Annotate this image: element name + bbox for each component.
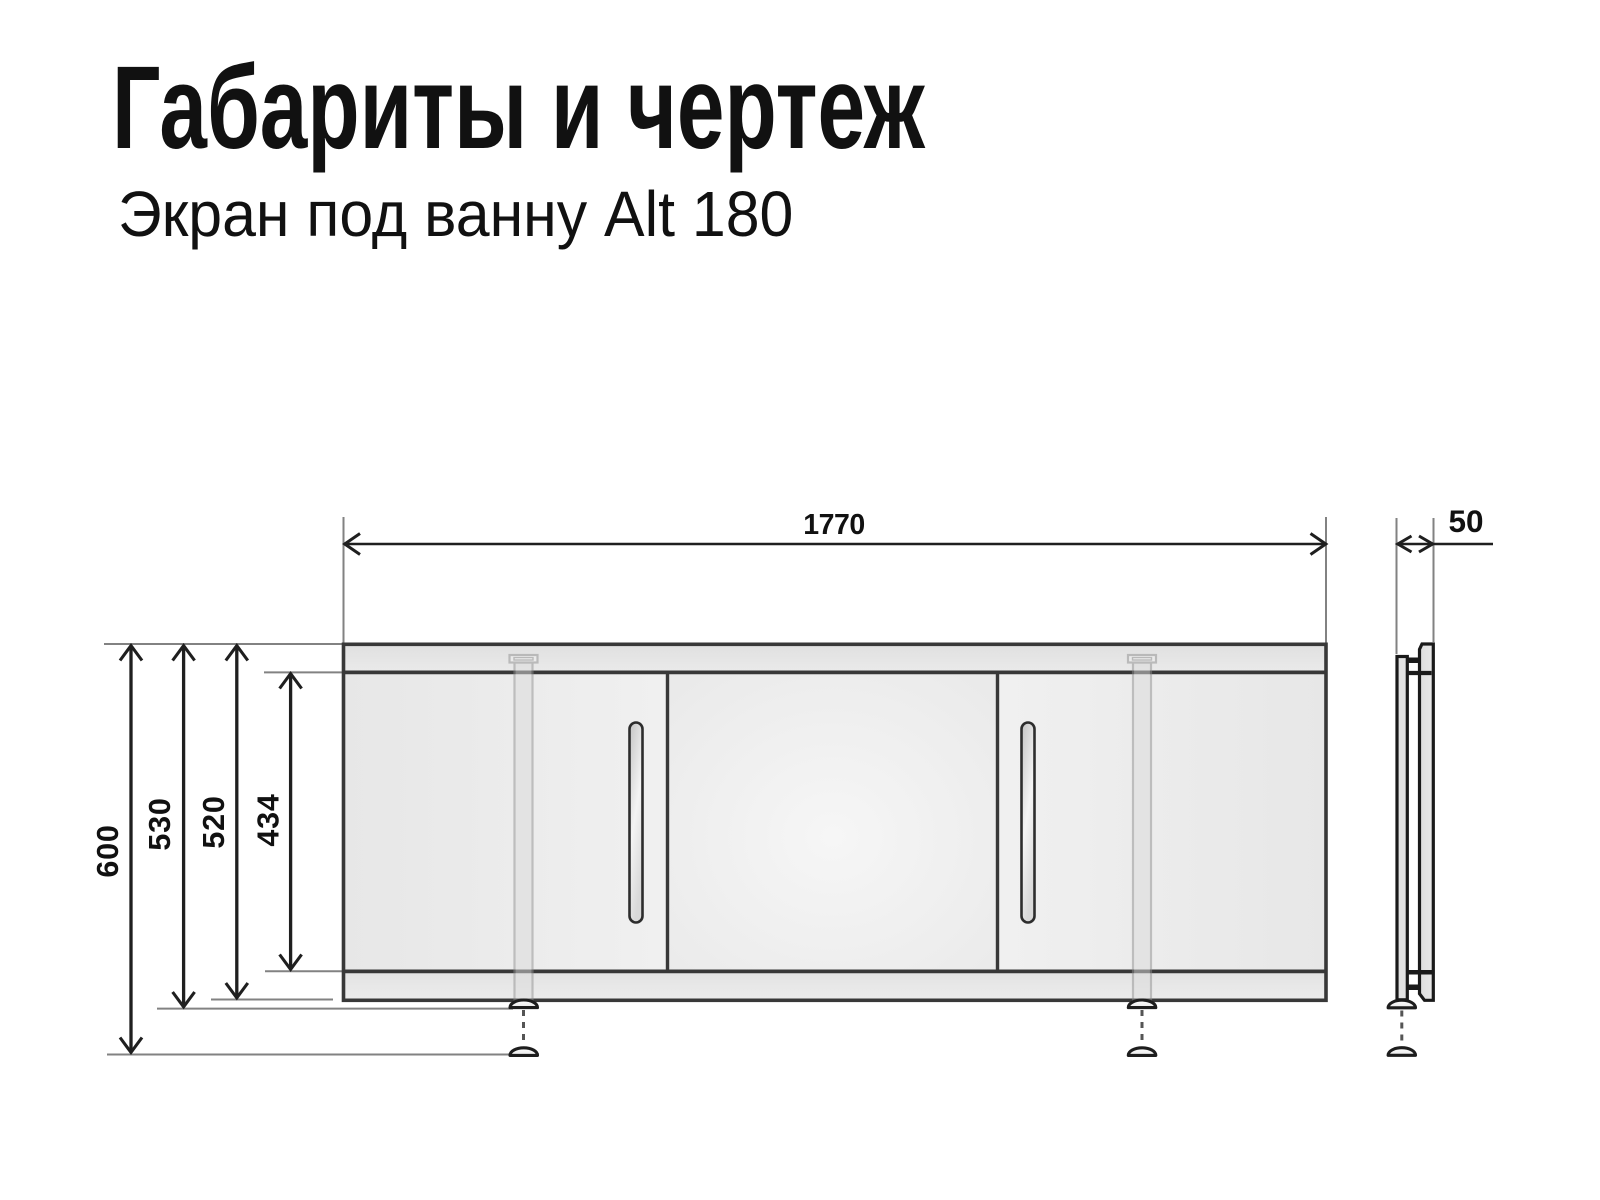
svg-text:50: 50 — [1448, 503, 1483, 539]
svg-text:520: 520 — [197, 795, 231, 848]
svg-text:600: 600 — [91, 824, 125, 877]
svg-text:434: 434 — [252, 793, 286, 846]
svg-text:1770: 1770 — [803, 509, 864, 541]
svg-text:530: 530 — [143, 797, 177, 850]
